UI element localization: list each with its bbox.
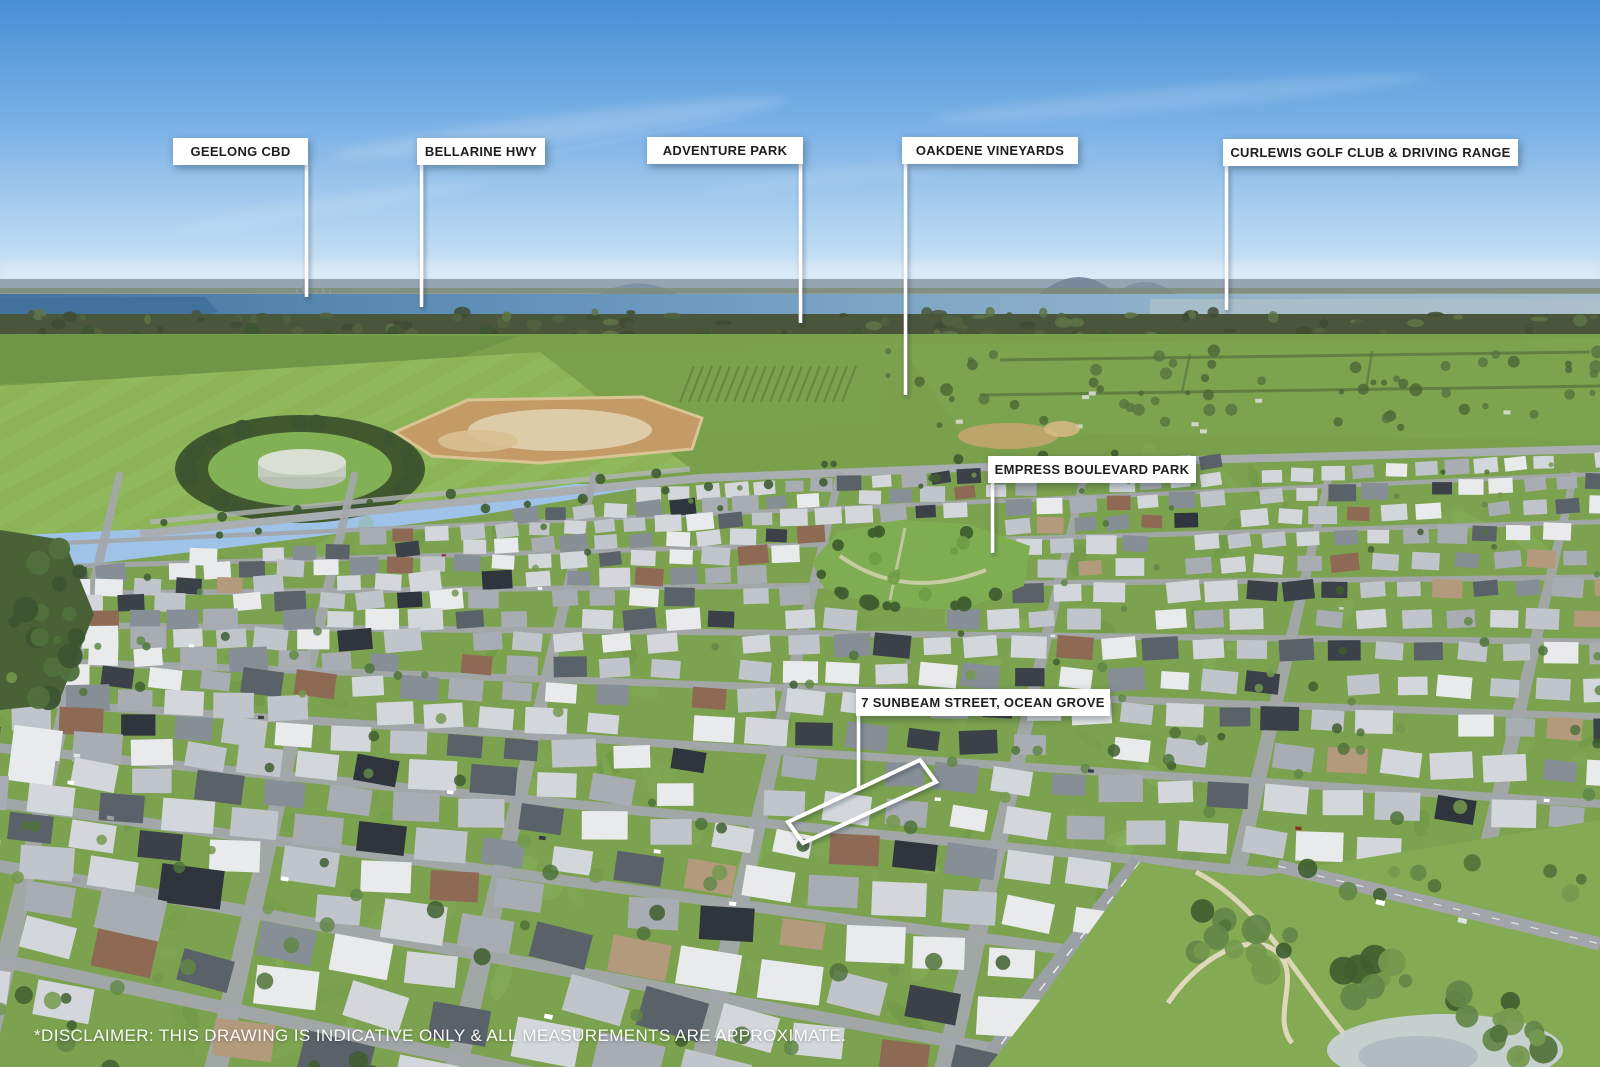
callout-geelong-cbd-label: GEELONG CBD [190, 144, 290, 159]
callout-property-address: 7 SUNBEAM STREET, OCEAN GROVE [856, 689, 1110, 716]
callout-empress-park-label: EMPRESS BOULEVARD PARK [995, 462, 1190, 477]
disclaimer-text: *DISCLAIMER: THIS DRAWING IS INDICATIVE … [34, 1026, 846, 1046]
callout-empress-park: EMPRESS BOULEVARD PARK [988, 456, 1196, 483]
callout-oakdene-vineyards: OAKDENE VINEYARDS [902, 137, 1078, 164]
callout-property-address-label: 7 SUNBEAM STREET, OCEAN GROVE [861, 695, 1104, 710]
callout-adventure-park-label: ADVENTURE PARK [663, 143, 788, 158]
callout-oakdene-vineyards-label: OAKDENE VINEYARDS [916, 143, 1064, 158]
property-marketing-aerial: GEELONG CBD BELLARINE HWY ADVENTURE PARK… [0, 0, 1600, 1067]
property-boundary-outline [788, 760, 936, 843]
callout-adventure-park: ADVENTURE PARK [647, 137, 803, 164]
callout-bellarine-hwy-label: BELLARINE HWY [425, 144, 537, 159]
callout-bellarine-hwy: BELLARINE HWY [417, 138, 545, 165]
callout-curlewis-golf: CURLEWIS GOLF CLUB & DRIVING RANGE [1223, 139, 1518, 166]
callout-curlewis-golf-label: CURLEWIS GOLF CLUB & DRIVING RANGE [1230, 145, 1510, 160]
callout-geelong-cbd: GEELONG CBD [173, 138, 308, 165]
